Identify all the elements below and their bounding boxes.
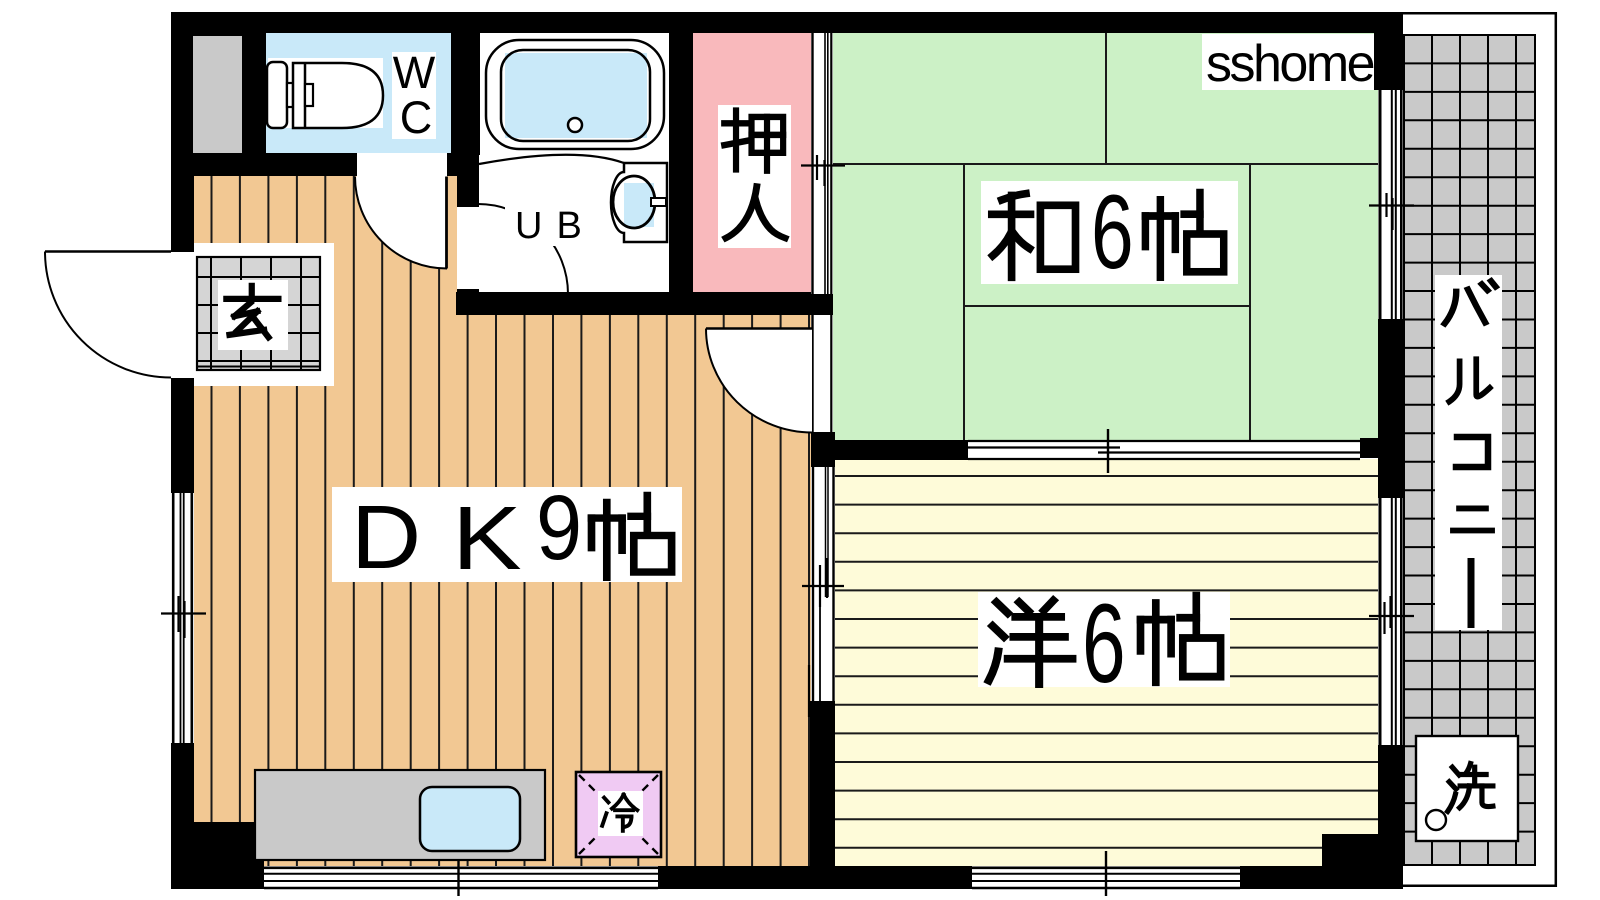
svg-text:UB: UB	[515, 205, 596, 247]
svg-text:9: 9	[536, 476, 582, 579]
svg-text:W: W	[393, 47, 436, 98]
svg-text:6: 6	[1082, 581, 1126, 706]
svg-text:6: 6	[1091, 174, 1134, 291]
svg-text:C: C	[400, 92, 433, 143]
svg-text:K: K	[452, 488, 522, 589]
svg-text:D: D	[351, 486, 421, 587]
svg-text:sshome: sshome	[1206, 35, 1374, 93]
